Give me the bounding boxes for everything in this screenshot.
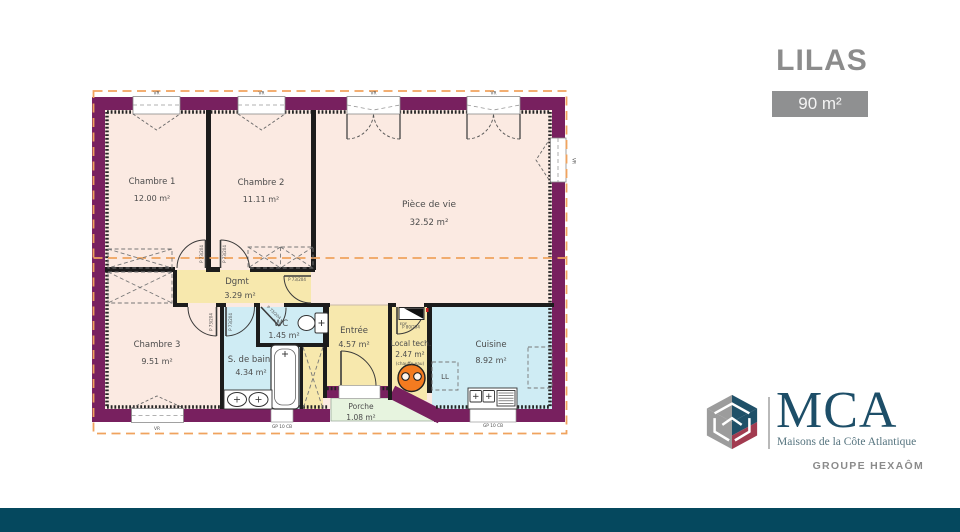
brand-group: GROUPE HEXAÔM	[778, 460, 924, 472]
area-chambre3: 9.51 m²	[141, 357, 172, 366]
label-sdb: S. de bain	[228, 355, 270, 365]
label-wc: WC	[274, 319, 288, 329]
brand-divider	[768, 397, 770, 449]
label-cuisine: Cuisine	[475, 340, 506, 350]
access-panel-1	[271, 409, 293, 422]
area-sdb: 4.34 m²	[235, 368, 266, 377]
label-piece-de-vie: Pièce de vie	[402, 199, 457, 210]
label-chambre2: Chambre 2	[238, 178, 285, 188]
label-porche: Porche	[348, 402, 374, 411]
door-code-1: P 73/204	[199, 245, 204, 263]
area-dgmt: 3.29 m²	[224, 291, 255, 300]
area-porche: 1.08 m²	[346, 413, 375, 422]
label-dgmt: Dgmt	[225, 277, 249, 287]
electrical-label: EDF	[400, 321, 408, 326]
window-code-right: VR	[571, 158, 577, 164]
door-code-2: P 73/204	[222, 245, 227, 263]
brand-block: MCA Maisons de la Côte Atlantique GROUPE…	[700, 390, 940, 480]
window-code-4: VR	[491, 90, 497, 96]
water-heater-icon	[398, 365, 425, 392]
access-panel-2	[470, 409, 516, 422]
access-panel-label-1: GP 10 CB	[272, 424, 292, 430]
label-chambre3: Chambre 3	[134, 340, 181, 350]
electrical-panel-icon	[399, 308, 429, 320]
area-chambre2: 11.11 m²	[243, 195, 279, 204]
door-code-3: P 73/204	[209, 313, 214, 331]
access-panel-label-2: GP 10 CB	[483, 423, 503, 429]
bathtub-icon	[271, 345, 299, 409]
double-sink-icon	[224, 390, 272, 409]
area-entree: 4.57 m²	[338, 340, 369, 349]
page-title: LILAS	[712, 44, 932, 78]
area-piece-de-vie: 32.52 m²	[410, 218, 449, 228]
window-code-bottom: VR	[154, 426, 160, 432]
area-cuisine: 8.92 m²	[475, 356, 506, 365]
mca-cube-logo-icon	[703, 393, 761, 451]
label-entree: Entrée	[340, 325, 368, 336]
door-code-5: P 73/204	[288, 277, 306, 282]
label-chambre1: Chambre 1	[129, 177, 176, 187]
kitchen-sink-icon	[468, 388, 517, 409]
window-code-2: VR	[259, 90, 265, 96]
window-code-3: VR	[371, 90, 377, 96]
area-chambre1: 12.00 m²	[134, 194, 170, 203]
window-code-1: VR	[154, 90, 160, 96]
label-local-tech: Local tech.	[391, 339, 432, 348]
area-badge: 90 m²	[772, 91, 868, 117]
front-door-gap	[339, 386, 380, 399]
page: Chambre 1 12.00 m² Chambre 2 11.11 m² Pi…	[0, 0, 960, 532]
door-code-4: P 73/204	[228, 313, 233, 331]
brand-name: MCA	[776, 381, 897, 440]
note-local-tech: (chauffe-eau)	[396, 361, 425, 366]
label-washing-machine: LL	[441, 373, 449, 381]
brand-tagline: Maisons de la Côte Atlantique	[777, 436, 916, 448]
area-wc: 1.45 m²	[268, 331, 299, 340]
bottom-accent-bar	[0, 508, 960, 532]
area-local-tech: 2.47 m²	[395, 350, 424, 359]
